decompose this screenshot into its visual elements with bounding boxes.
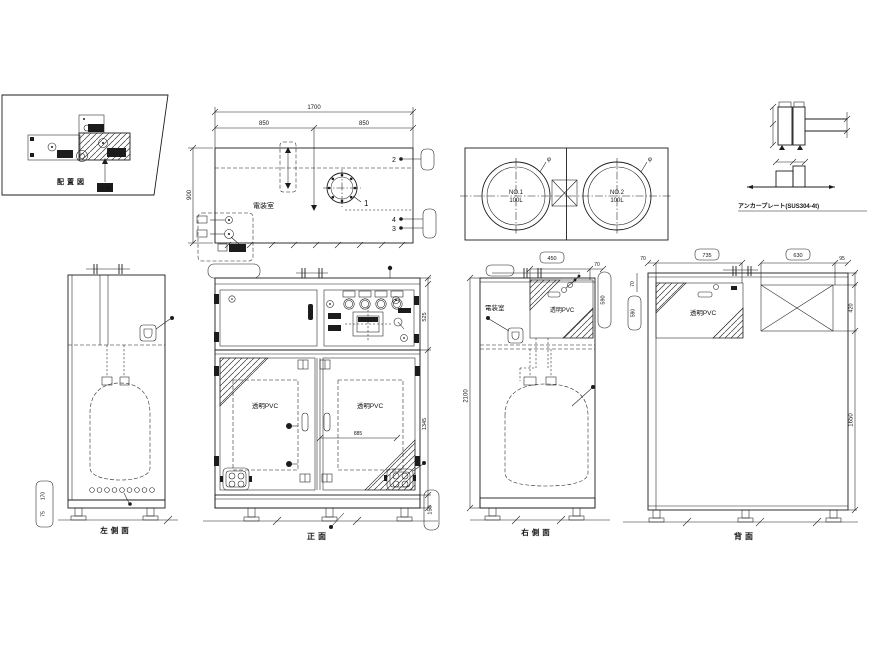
- pvc-label: 透明PVC: [690, 309, 717, 317]
- svg-text:95: 95: [839, 256, 845, 262]
- svg-text:2: 2: [392, 157, 396, 164]
- pvc-window-right: [338, 380, 403, 470]
- svg-text:70: 70: [640, 256, 646, 262]
- equipment-label-block: [57, 150, 73, 158]
- rear-cabinet-outline: [648, 273, 848, 510]
- front-dim-chain: 525 1345: [420, 275, 431, 511]
- svg-text:70: 70: [630, 281, 636, 287]
- pvc-label: 透明PVC: [252, 402, 279, 410]
- window-height-tag: 590: [598, 272, 611, 328]
- left-side-view: 170 75 左側面: [28, 253, 198, 548]
- drawing-sheet: 本機 配置図 1700 850 850 900: [0, 0, 872, 659]
- door-handle: [302, 413, 308, 431]
- svg-text:590: 590: [601, 295, 607, 304]
- top-flanges: [723, 266, 758, 276]
- svg-text:2100: 2100: [464, 389, 470, 403]
- caster-callout: [486, 316, 523, 343]
- svg-text:450: 450: [547, 256, 556, 262]
- svg-text:70: 70: [594, 262, 600, 268]
- rear-right-dims: 420 1650: [833, 270, 858, 513]
- equipment-label-block: [107, 148, 126, 157]
- panel-label-block: [328, 313, 341, 319]
- svg-text:4: 4: [392, 217, 396, 224]
- svg-text:1345: 1345: [422, 418, 428, 430]
- base-and-feet: [470, 498, 610, 524]
- hatched-corner: [713, 308, 743, 338]
- svg-text:850: 850: [259, 121, 270, 127]
- equipment-top-unit: [79, 115, 104, 133]
- svg-text:1650: 1650: [849, 413, 855, 427]
- door-handle: [324, 413, 330, 431]
- top-piping: [86, 264, 130, 345]
- phi-label: φ: [547, 157, 551, 163]
- front-view: 透明PVC 透明PVC 885: [198, 258, 448, 550]
- plan-duct: [280, 142, 296, 192]
- anchor-caption: アンカープレート(SUS304-4t): [738, 202, 819, 210]
- rear-view: 70 735 630 95 透明PVC 420 1650 70 590: [623, 248, 872, 550]
- rear-window: 透明PVC: [656, 283, 743, 338]
- equipment-left-unit: [28, 135, 80, 160]
- window-dim: 450 70: [527, 252, 606, 280]
- svg-text:NO.2: NO.2: [610, 190, 625, 196]
- plan-room-label: 電装室: [253, 201, 274, 210]
- svg-text:850: 850: [359, 121, 370, 127]
- machine-pointer: 本機: [97, 158, 113, 192]
- rear-top-dims: 70 735 630 95: [640, 249, 851, 285]
- plan-electrical-box: [197, 213, 253, 261]
- front-view-caption: 正面: [307, 532, 329, 541]
- selector-switch: [394, 318, 402, 326]
- pvc-label: 透明PVC: [357, 402, 384, 410]
- left-cabinet-outline: [68, 275, 165, 500]
- phi-label: φ: [648, 157, 652, 163]
- plan-callout-3-4: 4 3: [392, 209, 436, 238]
- louver-panel: [761, 285, 833, 331]
- right-cabinet-outline: [480, 278, 595, 508]
- controller-display: [345, 306, 391, 342]
- control-panel: [324, 290, 419, 346]
- top-flanges: [296, 266, 392, 278]
- svg-text:100L: 100L: [509, 198, 523, 204]
- caster-callout: [140, 316, 174, 341]
- svg-text:100L: 100L: [610, 198, 624, 204]
- duct-dashed: [520, 338, 548, 381]
- pvc-label: 透明PVC: [550, 306, 575, 314]
- tank-dashed-outline: [505, 349, 595, 486]
- height-tag: 170 75: [36, 481, 53, 527]
- svg-text:NO.1: NO.1: [509, 190, 524, 196]
- plan-dim-halves: 850 850: [212, 121, 416, 211]
- svg-text:525: 525: [422, 312, 428, 321]
- panel-label-block: [398, 308, 411, 313]
- plan-dim-depth: 900: [187, 145, 213, 246]
- upper-left-door: [214, 290, 317, 346]
- svg-text:590: 590: [631, 309, 637, 318]
- anchor-detail-section: [770, 102, 850, 150]
- door-dim: 885: [354, 431, 363, 437]
- tank-dashed-outline: [90, 345, 150, 480]
- lower-doors: 透明PVC 透明PVC 885: [214, 358, 420, 490]
- hatched-corner: [656, 283, 686, 313]
- socket-box-left: [220, 468, 252, 490]
- rear-base-feet: [623, 506, 858, 526]
- svg-text:420: 420: [849, 303, 855, 312]
- panel-label-block: [328, 325, 341, 331]
- svg-text:3: 3: [392, 226, 396, 233]
- right-view-caption: 右側面: [520, 527, 553, 537]
- hatched-corner: [530, 280, 560, 310]
- balloon-1: 1: [364, 199, 369, 208]
- plan-flange: 1: [323, 169, 369, 208]
- machine-unit-hatched: [79, 133, 130, 160]
- anchor-detail-plan: [747, 159, 835, 189]
- hatched-corner: [220, 358, 268, 406]
- left-view-caption: 左側面: [99, 525, 132, 535]
- room-label: 電装室: [485, 303, 505, 312]
- door-handle: [308, 304, 313, 320]
- side-window: 透明PVC: [530, 275, 593, 338]
- svg-text:735: 735: [702, 253, 711, 259]
- svg-text:900: 900: [187, 189, 193, 200]
- svg-text:75: 75: [41, 511, 47, 517]
- top-plate: [208, 264, 260, 278]
- layout-inset-view: 本機 配置図: [0, 86, 185, 201]
- valve-symbol: [552, 180, 577, 206]
- rear-view-caption: 背面: [734, 531, 756, 541]
- inset-caption: 配置図: [57, 177, 87, 186]
- drain-holes-row: [90, 488, 155, 506]
- top-piping: [486, 265, 580, 278]
- right-side-view: 450 70 590 透明PVC 電装室: [462, 248, 620, 550]
- overall-height-dim: 2100: [464, 275, 483, 511]
- svg-text:150: 150: [428, 505, 434, 514]
- equipment-label-block: [88, 124, 104, 132]
- base-and-feet: [58, 500, 178, 524]
- anchor-plate-detail: アンカープレート(SUS304-4t): [735, 92, 872, 224]
- svg-text:170: 170: [41, 492, 47, 501]
- svg-text:1700: 1700: [307, 105, 321, 111]
- tank-top-view: NO.1 100L φ NO.2 100L φ: [460, 140, 678, 248]
- front-base-feet: [203, 495, 438, 529]
- machine-tag-label: 本機: [99, 184, 111, 192]
- rear-left-dims: 70 590: [628, 273, 641, 330]
- plan-view: 1700 850 850 900 1 2 4: [185, 95, 450, 270]
- power-label-block: [229, 244, 246, 252]
- tank-no1: NO.1 100L φ: [482, 157, 551, 234]
- svg-text:630: 630: [793, 253, 802, 259]
- tank-no2: NO.2 100L φ: [583, 157, 652, 234]
